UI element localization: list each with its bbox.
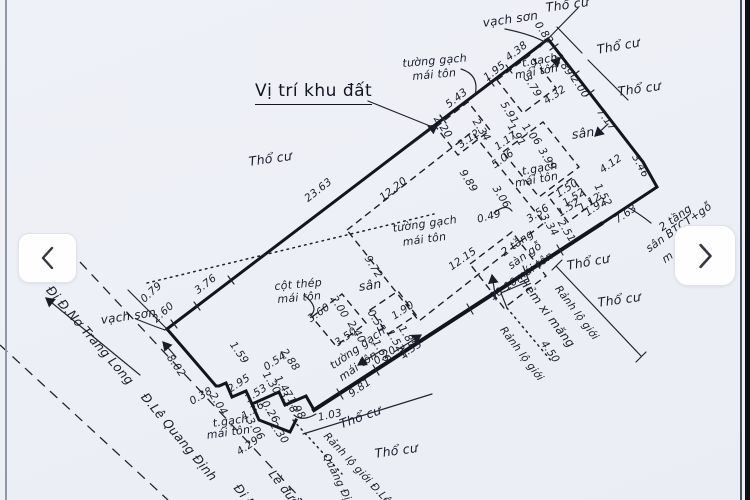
zone-label: Thổ cư [248,150,293,168]
dim-label: 1.98 [285,395,307,421]
feat-label: vạch sơn [482,9,539,29]
dim-label: 1.90 [390,300,416,322]
scan-edge-right-line [740,0,742,500]
bld-label: tường gạch [402,52,467,69]
street-label: Đi Đ.Nơ Trang Long [44,284,136,387]
dim-label: 9.72 [362,254,384,280]
image-viewer: Thổ cưThổ cưThổ cưThổ cưThổ cưThổ cưThổ … [0,0,750,500]
zone-label: Thổ cư [597,291,642,309]
dim-label: 2.04 [207,391,229,417]
dim-label: 5.06 [490,148,516,171]
dim-label: 2.00 [328,294,350,320]
dim-label: 5.91 [498,100,520,126]
dim-label: 3.46 [630,153,651,179]
dim-label: 2.30 [267,420,290,446]
dim-label: 0.49 [476,209,502,225]
drawing-labels: Thổ cưThổ cưThổ cưThổ cưThổ cưThổ cưThổ … [0,0,750,500]
feat-label: vạch sơn [100,306,157,326]
dim-label: 3.06 [490,184,512,210]
feat-label: Lề đường [267,468,312,500]
scan-edge-left [5,0,7,500]
street-label: Đi Đ [231,482,258,500]
bld-label: mái tôn [402,231,447,248]
featsm-label: Rảnh lộ giới [498,325,545,383]
bld-label: mái tôn [277,290,322,305]
zone-label: sân [571,126,595,142]
dim-label: 2.20 [431,114,453,140]
bld-label: m [660,250,675,265]
bld-label: mái tôn [412,67,457,82]
dim-label: 7.63 [613,203,639,226]
dim-label: 2.88 [278,347,301,373]
zone-label: Thổ cư [338,404,383,431]
zone-label: Thổ cư [566,252,611,272]
dim-label: 4.50 [538,339,561,365]
bld-label: mái tôn [514,170,559,188]
next-image-button[interactable] [674,225,736,286]
dim-label: 0.83 [532,20,554,46]
dim-label: 0.55 [365,308,387,334]
zone-label: Thổ cư [596,36,641,56]
chevron-left-icon [37,243,59,273]
dim-label: 9.89 [457,168,479,194]
dim-label: 8.02 [164,353,187,379]
page-title: Vị trí khu đất [255,81,372,105]
dim-label: 2.51 [555,218,577,244]
dim-label: 12.15 [447,246,479,273]
scan-edge-right-bar [745,0,750,500]
dim-label: 3.60 [306,302,332,325]
dim-label: 4.29 [235,435,261,458]
dim-label: 1.95 [482,60,508,83]
chevron-right-icon [693,239,717,273]
dim-label: 1.59 [227,340,250,366]
zone-label: Thổ cư [617,80,662,98]
dim-label: 7.17 [595,107,618,133]
dim-label: 3.76 [193,273,219,296]
dim-label: 2.00 [568,74,590,100]
dim-label: 4.32 [542,84,568,107]
zone-label: Thổ cư [545,0,590,14]
dim-label: 18.10 [488,276,520,303]
dim-label: 23.63 [303,177,334,205]
zone-label: Thổ cư [374,442,419,460]
dim-label: 9.81 [347,377,373,400]
prev-image-button[interactable] [18,233,77,283]
zone-label: sân [358,278,382,294]
dim-label: 5.43 [444,87,470,110]
dim-label: 4.12 [598,153,624,176]
dim-label: 12.20 [378,176,409,204]
dim-label: 0.79 [139,281,164,305]
bld-label: tường gạch [392,214,458,234]
